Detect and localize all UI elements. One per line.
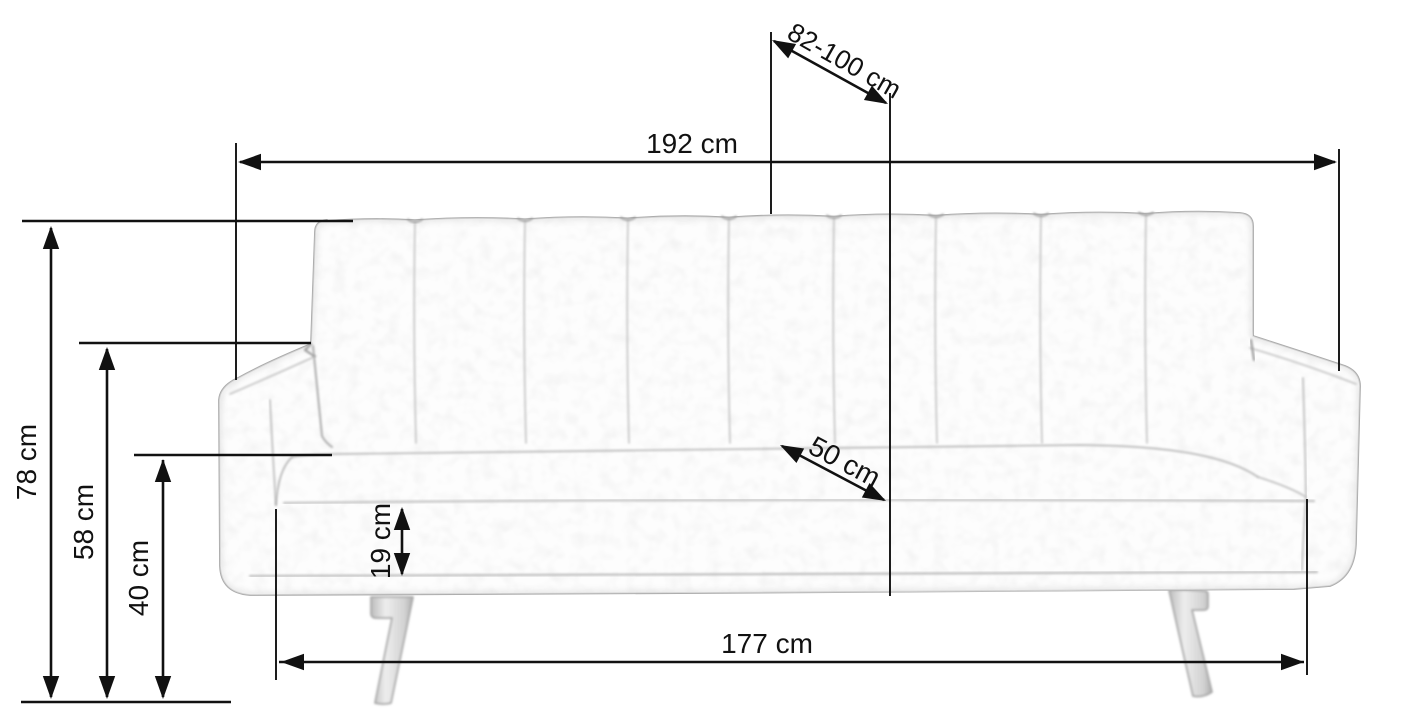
svg-text:19 cm: 19 cm xyxy=(365,503,396,579)
svg-text:192 cm: 192 cm xyxy=(646,128,738,159)
svg-text:177 cm: 177 cm xyxy=(721,628,813,659)
svg-text:40 cm: 40 cm xyxy=(123,540,154,616)
svg-text:58 cm: 58 cm xyxy=(68,484,99,560)
svg-text:78 cm: 78 cm xyxy=(11,424,42,500)
